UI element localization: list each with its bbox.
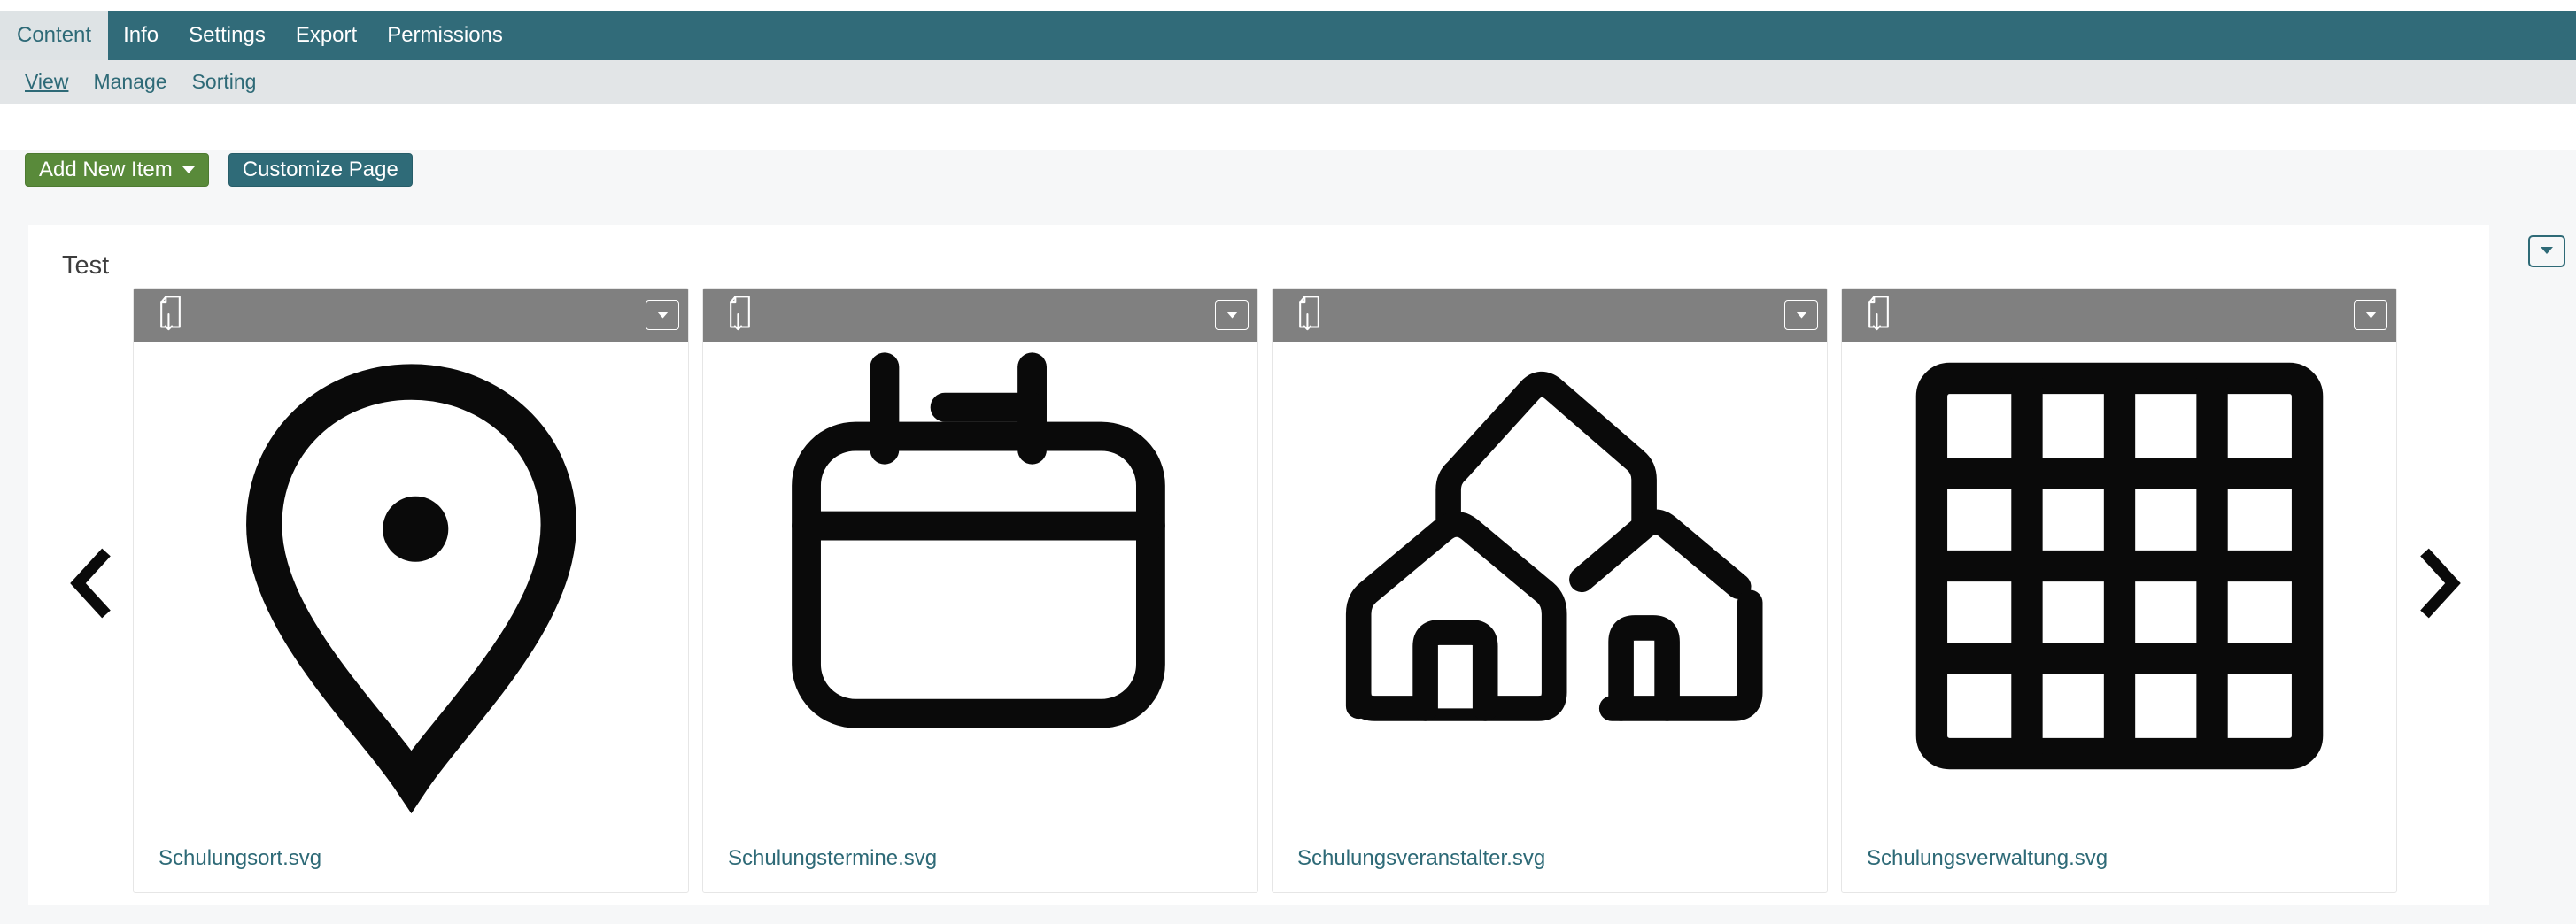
file-actions-button[interactable] [1215,300,1249,330]
customize-page-label: Customize Page [243,158,398,182]
file-card: Schulungsort.svg [133,288,689,893]
file-preview [703,342,1257,846]
carousel-prev-button[interactable] [67,547,115,620]
file-card: Schulungsverwaltung.svg [1841,288,2397,893]
tab-content[interactable]: Content [0,11,108,60]
location-pin-icon [201,343,622,829]
caret-down-icon [2540,243,2554,259]
file-actions-button[interactable] [2354,300,2387,330]
add-new-item-button[interactable]: Add New Item [25,153,209,187]
buildings-icon [1306,343,1793,807]
caret-down-icon [2365,307,2377,323]
tab-permissions[interactable]: Permissions [372,11,518,60]
chevron-left-icon [67,608,115,623]
toolbar-tabbar: Content Info Settings Export Permissions [0,11,2576,60]
file-download-icon [1296,294,1323,337]
caret-down-icon [657,307,669,323]
carousel-next-button[interactable] [2416,547,2464,620]
subnav: View Manage Sorting [0,60,2576,104]
file-card-header [1842,289,2396,342]
file-link[interactable]: Schulungsverwaltung.svg [1842,846,2396,892]
subnav-manage[interactable]: Manage [93,70,166,94]
file-link[interactable]: Schulungsort.svg [134,846,688,892]
file-download-icon [726,294,754,337]
tab-settings[interactable]: Settings [174,11,281,60]
file-download-icon [157,294,184,337]
file-actions-button[interactable] [1784,300,1818,330]
action-button-row: Add New Item Customize Page [25,153,413,187]
file-preview [1842,342,2396,846]
file-preview [1273,342,1827,846]
file-card: Schulungstermine.svg [702,288,1258,893]
customize-page-button[interactable]: Customize Page [228,153,413,187]
caret-down-icon [1226,307,1238,323]
add-new-item-label: Add New Item [39,158,173,182]
subnav-view[interactable]: View [25,70,68,94]
subnav-sorting[interactable]: Sorting [192,70,257,94]
file-preview [134,342,688,846]
page: Content Info Settings Export Permissions… [0,0,2576,924]
file-actions-button[interactable] [646,300,679,330]
caret-down-icon [1796,307,1807,323]
caret-down-icon [182,166,195,174]
file-card: Schulungsveranstalter.svg [1272,288,1828,893]
tab-info[interactable]: Info [108,11,174,60]
file-download-icon [1865,294,1892,337]
file-link[interactable]: Schulungsveranstalter.svg [1273,846,1827,892]
section-title: Test [62,251,109,281]
file-link[interactable]: Schulungstermine.svg [703,846,1257,892]
tab-export[interactable]: Export [281,11,372,60]
calendar-icon [757,343,1204,798]
file-card-header [134,289,688,342]
file-card-header [1273,289,1827,342]
grid-icon [1896,343,2343,794]
file-card-header [703,289,1257,342]
section-options-button[interactable] [2528,235,2565,267]
header-gap [0,104,2576,150]
chevron-right-icon [2416,608,2464,623]
carousel-track: Schulungsort.svg [133,288,2397,893]
